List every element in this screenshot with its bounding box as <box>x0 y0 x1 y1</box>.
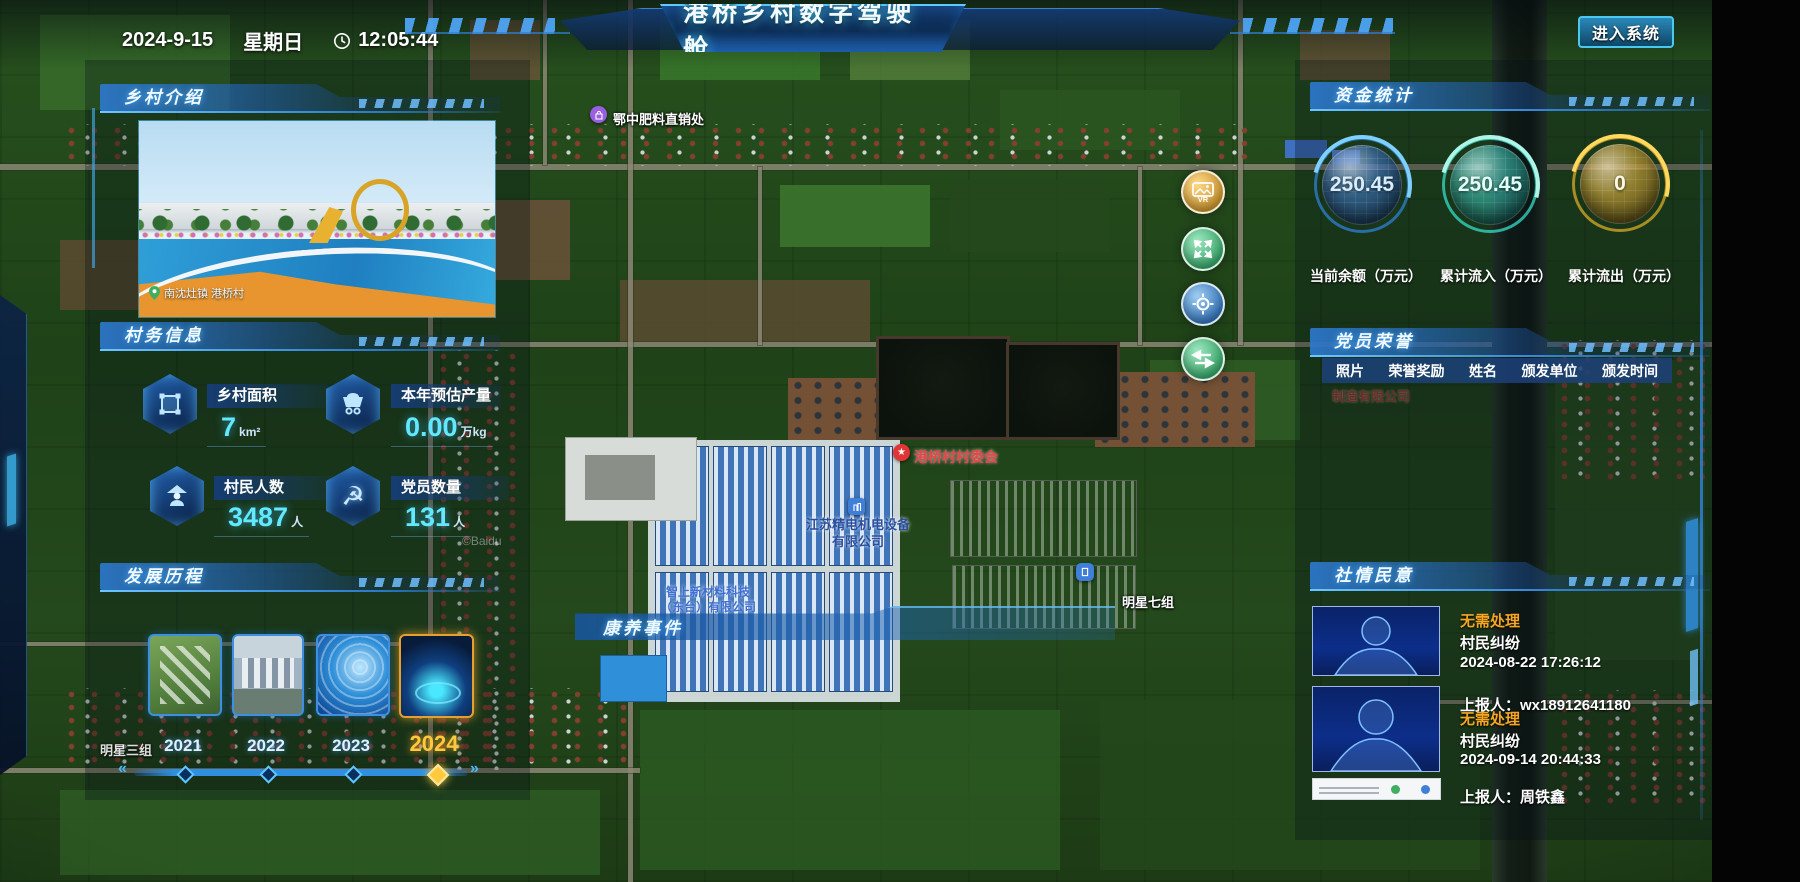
company2-line1: 智上新材料科技 <box>666 585 750 599</box>
gauge-label-balance: 当前余额（万元） <box>1310 266 1440 286</box>
panel-header-underline <box>100 111 500 113</box>
fertilizer-label: 鄂中肥料直销处 <box>613 109 704 128</box>
datetime-bar: 2024-9-15 星期日 12:05:44 <box>122 26 438 55</box>
map-road <box>1138 167 1142 345</box>
history-thumb-2021[interactable] <box>148 634 222 716</box>
gauge-value: 250.45 <box>1330 173 1394 197</box>
swap-arrows-icon <box>1191 349 1215 369</box>
panel-header-underline <box>1310 109 1710 111</box>
map-field-patch <box>60 790 600 875</box>
panel-title-health: 康养事件 <box>603 614 683 639</box>
panel-title-history: 发展历程 <box>124 565 204 589</box>
panel-header-affairs: 村务信息 <box>100 322 500 349</box>
honors-col-date: 颁发时间 <box>1602 361 1658 381</box>
title-banner: « 港桥乡村数字驾驶舱 » <box>660 4 966 52</box>
stat-value-unit: km² <box>239 425 260 439</box>
dashboard-root: 鄂中肥料直销处 ★ 港桥村村委会 江苏精电机电设备 有限公司 智上新材料科技 （… <box>0 0 1800 882</box>
thumb-screenshot-dot-blue <box>1421 785 1430 794</box>
building-icon <box>852 502 862 512</box>
thumb-texture <box>242 658 294 688</box>
stat-value-villagers: 3487人 <box>214 502 309 537</box>
village-photo[interactable]: 南沈灶镇 港桥村 <box>138 120 496 318</box>
panel-title-affairs: 村务信息 <box>124 324 204 348</box>
stat-value-unit: 人 <box>291 515 303 529</box>
committee-label: 港桥村村委会 <box>914 447 998 467</box>
company1-label: 江苏精电机电设备 有限公司 <box>795 516 921 550</box>
fullscreen-button[interactable] <box>1181 227 1225 271</box>
gauge-sphere: 250.45 <box>1322 145 1402 225</box>
clock-icon <box>333 32 351 50</box>
opinion2-time: 2024-09-14 20:44:33 <box>1460 751 1601 768</box>
opinion2-reporter: 上报人：周铁鑫 <box>1460 786 1565 807</box>
honors-col-award: 荣誉奖励 <box>1389 361 1445 381</box>
panel-title-opinions: 社情民意 <box>1334 564 1414 588</box>
screen-black-band <box>1712 0 1800 882</box>
mine-cart-icon <box>339 391 367 417</box>
timeline-arrow-right[interactable]: » <box>470 760 479 778</box>
map-field-patch <box>620 280 870 342</box>
honors-col-name: 姓名 <box>1469 361 1497 381</box>
thumb-texture <box>318 636 388 714</box>
panel-header-underline <box>1310 355 1710 357</box>
opinion2-status: 无需处理 <box>1460 708 1520 729</box>
panel-header-history: 发展历程 <box>100 563 500 590</box>
committee-marker[interactable]: ★ <box>893 444 910 461</box>
panel-header-hatch <box>1569 577 1694 586</box>
banner-stripes-right <box>1243 18 1393 34</box>
map-field-patch <box>640 710 1060 870</box>
company1-marker[interactable] <box>848 498 865 515</box>
switch-layer-button[interactable] <box>1181 337 1225 381</box>
stat-value-unit: 人 <box>453 515 465 529</box>
opinion1-time: 2024-08-22 17:26:12 <box>1460 654 1601 671</box>
company2-line2: （东台）有限公司 <box>660 600 756 614</box>
stat-value-number: 3487 <box>228 502 288 532</box>
company1-line2: 有限公司 <box>832 534 884 549</box>
crosshair-icon <box>1192 293 1214 315</box>
map-pond <box>876 336 1010 440</box>
panel-header-underline <box>100 349 500 351</box>
gauge-value: 250.45 <box>1458 173 1522 197</box>
party-emblem-icon: ☭ <box>341 481 364 512</box>
panel-header-hatch <box>359 578 484 587</box>
map-blue-pond <box>600 655 667 702</box>
opinion-thumb-2[interactable] <box>1312 686 1440 772</box>
panel-header-honors: 党员荣誉 <box>1310 328 1710 355</box>
stat-label-output: 本年预估产量 <box>391 384 501 408</box>
gauge-label-outflow: 累计流出（万元） <box>1568 266 1698 286</box>
gauge-value: 0 <box>1614 172 1626 196</box>
stat-label-area: 乡村面积 <box>207 384 329 408</box>
company1-line1: 江苏精电机电设备 <box>806 517 910 532</box>
thumb-texture <box>415 682 461 704</box>
map-factory-shed <box>713 446 767 566</box>
weekday-text: 星期日 <box>243 26 303 55</box>
panel-title-intro: 乡村介绍 <box>124 86 204 110</box>
enter-system-button[interactable]: 进入系统 <box>1578 16 1674 48</box>
year-2021[interactable]: 2021 <box>148 736 218 756</box>
map-office-building <box>585 455 655 500</box>
panel-title-funds: 资金统计 <box>1334 84 1414 108</box>
gauge-sphere: 0 <box>1580 144 1660 224</box>
gauge-inflow: 250.45 <box>1442 137 1538 233</box>
villager-icon <box>164 483 190 509</box>
stat-label-party: 党员数量 <box>391 476 509 500</box>
stat-value-output: 0.00万kg <box>391 412 493 447</box>
hologram-person-icon <box>1313 687 1439 771</box>
vr-image-icon: VR <box>1191 181 1215 203</box>
expand-arrows-icon <box>1192 238 1214 260</box>
panel-header-underline <box>100 590 500 592</box>
panel-header-intro: 乡村介绍 <box>100 84 500 111</box>
panel-header-hatch <box>1569 343 1694 352</box>
panel-header-hatch <box>359 337 484 346</box>
photo-ring-sculpture <box>351 179 409 241</box>
opinion2-type: 村民纠纷 <box>1460 730 1520 751</box>
date-text: 2024-9-15 <box>122 29 213 52</box>
history-thumb-2023[interactable] <box>316 634 390 716</box>
honors-table-header: 照片 荣誉奖励 姓名 颁发单位 颁发时间 <box>1322 358 1672 383</box>
vr-panorama-button[interactable]: VR <box>1181 170 1225 214</box>
year-2022[interactable]: 2022 <box>231 736 301 756</box>
stat-label-villagers: 村民人数 <box>214 476 332 500</box>
stat-value-unit: 万kg <box>461 425 487 439</box>
gauge-balance: 250.45 <box>1314 137 1410 233</box>
map-field-patch <box>780 185 930 247</box>
panel-header-underline <box>1310 589 1710 591</box>
document-icon <box>1080 567 1090 577</box>
opinion1-type: 村民纠纷 <box>1460 632 1520 653</box>
stat-value-number: 0.00 <box>405 412 458 442</box>
opinion-thumb-1[interactable] <box>1312 606 1440 676</box>
stat-value-number: 131 <box>405 502 450 532</box>
stat-value-party: 131人 <box>391 502 471 537</box>
map-field-patch <box>950 180 1110 252</box>
company2-label: 智上新材料科技 （东台）有限公司 <box>658 585 758 615</box>
group7-marker[interactable] <box>1076 563 1094 581</box>
opinion-thumb-3[interactable] <box>1312 778 1441 800</box>
opinion1-status: 无需处理 <box>1460 610 1520 631</box>
history-thumb-2024[interactable] <box>399 634 474 718</box>
shop-bag-icon <box>594 110 604 120</box>
photo-caption: 南沈灶镇 港桥村 <box>149 285 244 301</box>
fertilizer-marker[interactable] <box>590 106 607 123</box>
photo-caption-text: 南沈灶镇 港桥村 <box>164 285 244 301</box>
map-road <box>1238 0 1243 345</box>
thumb-screenshot-dot-green <box>1391 785 1400 794</box>
timeline-slider[interactable]: « » <box>118 764 500 782</box>
panel-header-hatch <box>1569 97 1694 106</box>
history-thumb-2022[interactable] <box>232 634 304 716</box>
thumb-screenshot-lines <box>1319 784 1379 794</box>
panel-header-funds: 资金统计 <box>1310 82 1710 109</box>
honors-col-photo: 照片 <box>1336 361 1364 381</box>
faint-company-label: 制造有限公司 <box>1332 386 1410 405</box>
map-field-patch <box>1300 30 1390 80</box>
stat-value-area: 7km² <box>207 412 266 447</box>
year-2023[interactable]: 2023 <box>316 736 386 756</box>
group7-label: 明星七组 <box>1122 592 1174 611</box>
area-icon <box>157 391 183 417</box>
gauge-sphere: 250.45 <box>1450 145 1530 225</box>
panel-title-honors: 党员荣誉 <box>1334 330 1414 354</box>
timeline-arrow-left[interactable]: « <box>118 760 127 778</box>
map-road <box>758 167 762 345</box>
thumb-texture <box>160 646 210 704</box>
honors-col-issuer: 颁发单位 <box>1522 361 1578 381</box>
vr-label: VR <box>1198 195 1209 203</box>
year-2024[interactable]: 2024 <box>399 731 469 757</box>
locate-button[interactable] <box>1181 282 1225 326</box>
gauge-outflow: 0 <box>1572 136 1668 232</box>
group3-label: 明星三组 <box>100 740 152 759</box>
map-pond <box>1006 342 1120 440</box>
map-warehouse <box>950 480 1137 557</box>
hologram-person-icon <box>1313 607 1439 675</box>
panel-header-opinions: 社情民意 <box>1310 562 1710 589</box>
gauge-label-inflow: 累计流入（万元） <box>1440 266 1570 286</box>
panel-header-hatch <box>359 99 484 108</box>
location-pin-icon <box>149 286 160 300</box>
stat-value-number: 7 <box>221 412 236 442</box>
banner-stripes-left <box>405 18 555 34</box>
